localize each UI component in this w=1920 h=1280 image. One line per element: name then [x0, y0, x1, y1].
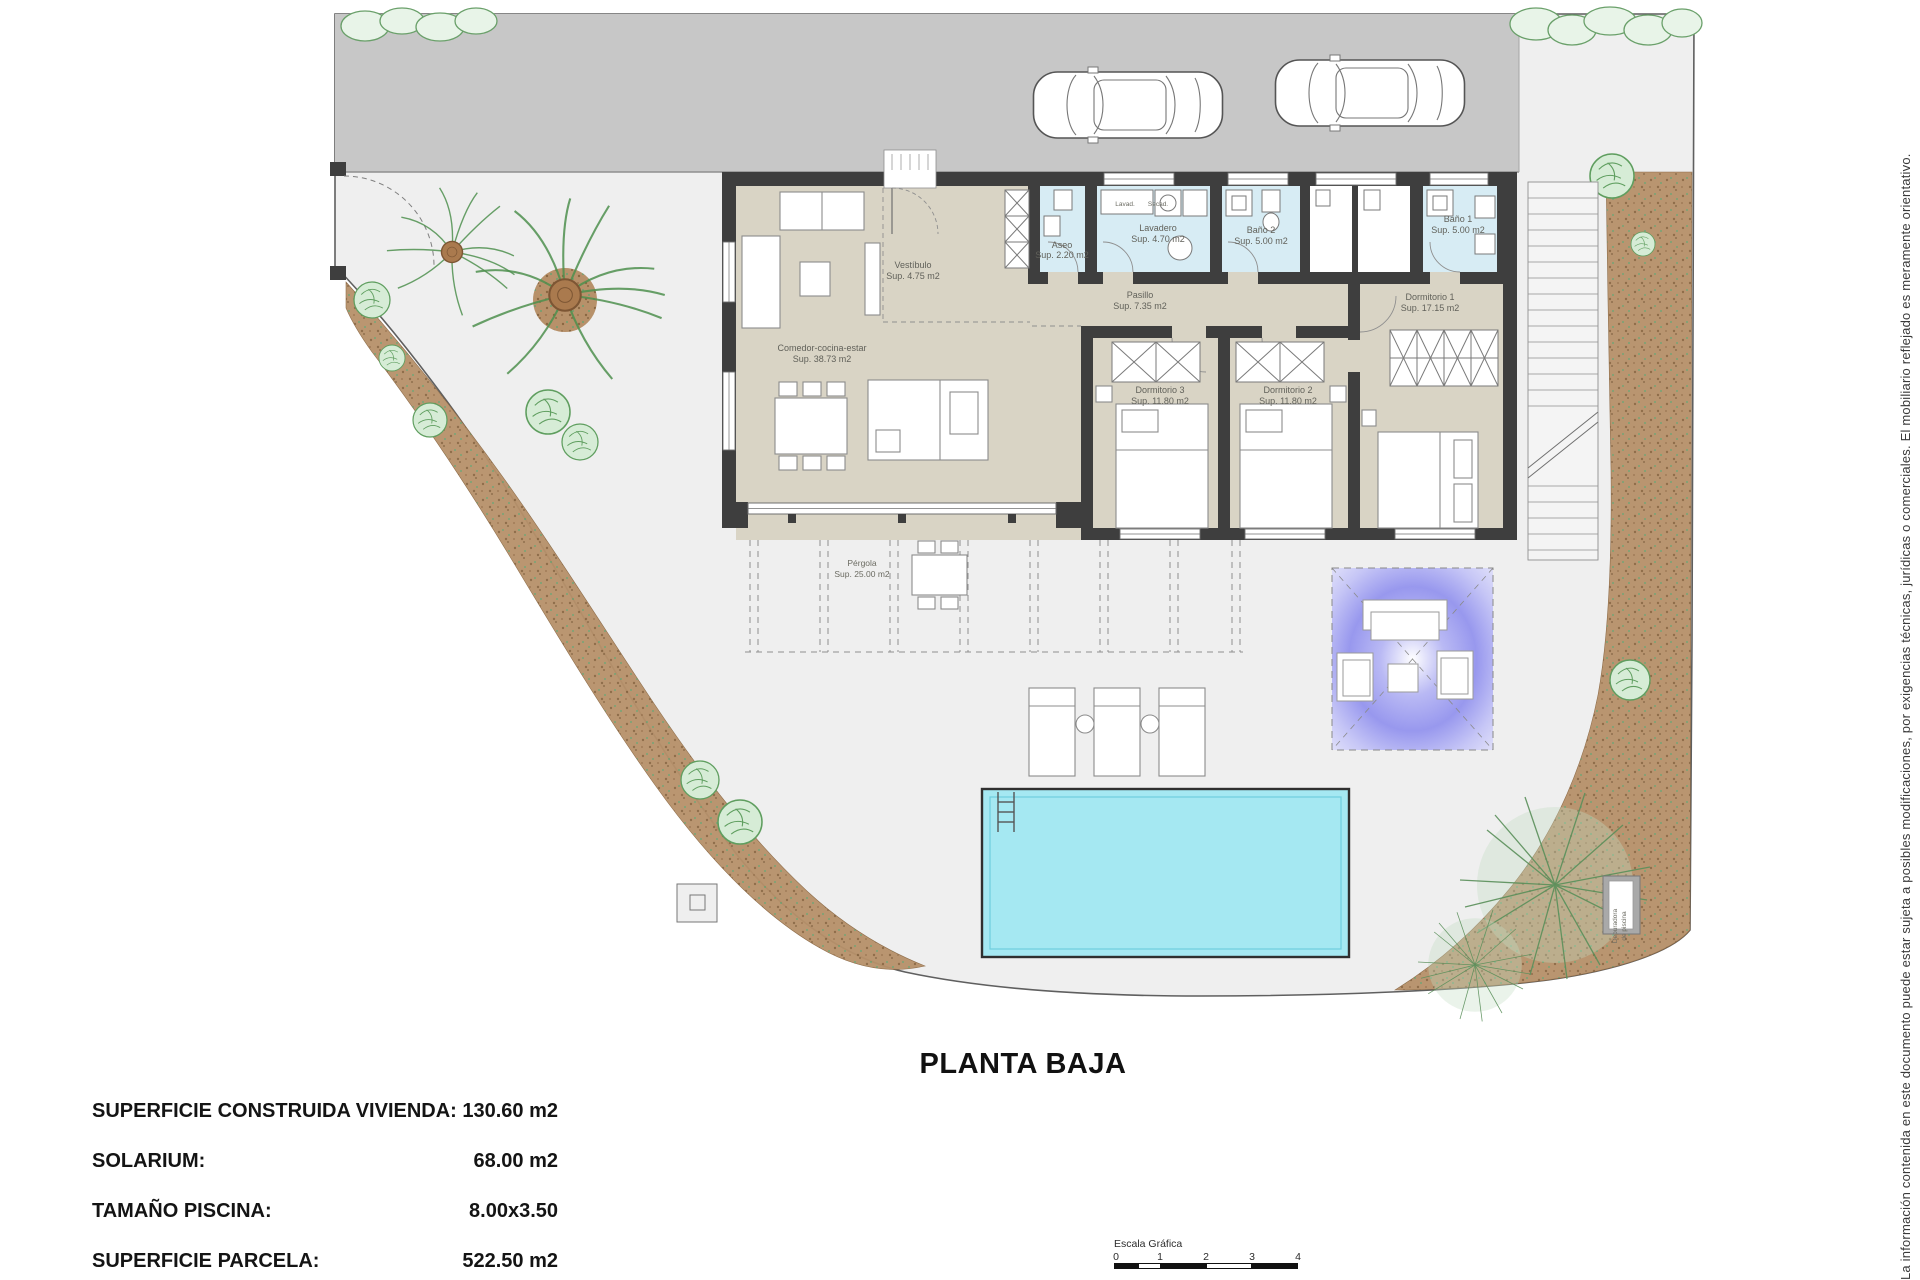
pool-pump-label-1: Depuradora — [1612, 908, 1619, 943]
sun-loungers — [1029, 688, 1205, 776]
scale-bar: Escala Gráfica 0 1 2 3 4 — [1114, 1238, 1304, 1269]
page-title: PLANTA BAJA — [860, 1048, 1186, 1081]
pool — [982, 789, 1349, 957]
summary-row: TAMAÑO PISCINA: 8.00x3.50 — [92, 1200, 558, 1223]
summary-row: SOLARIUM: 68.00 m2 — [92, 1150, 558, 1173]
hall-closet — [1005, 190, 1029, 268]
pool-pump-box: Depuradora de piscina — [1603, 876, 1640, 943]
room-label-dorm3: Dormitorio 3 — [1135, 385, 1184, 395]
summary-label: SUPERFICIE PARCELA: — [92, 1250, 319, 1273]
scale-bar-title: Escala Gráfica — [1114, 1238, 1304, 1250]
car-icon — [1276, 55, 1465, 131]
summary-label: SOLARIUM: — [92, 1150, 205, 1173]
summary-row: SUPERFICIE CONSTRUIDA VIVIENDA: 130.60 m… — [92, 1100, 558, 1123]
room-label-bano2: Baño 2 — [1247, 225, 1276, 235]
room-label-aseo: Aseo — [1052, 240, 1073, 250]
scale-tick: 4 — [1295, 1251, 1301, 1263]
utility-pad — [677, 884, 717, 922]
pool-pump-label-2: de piscina — [1621, 911, 1628, 941]
scale-tick: 2 — [1203, 1251, 1209, 1263]
room-label-pergola: Pérgola — [847, 558, 877, 568]
summary-table: SUPERFICIE CONSTRUIDA VIVIENDA: 130.60 m… — [92, 1100, 558, 1280]
summary-value: 68.00 m2 — [473, 1150, 558, 1173]
summary-value: 130.60 m2 — [462, 1100, 558, 1123]
summary-row: SUPERFICIE PARCELA: 522.50 m2 — [92, 1250, 558, 1273]
label-dryer: Secad. — [1148, 201, 1168, 208]
summary-value: 8.00x3.50 — [469, 1200, 558, 1223]
pergola-seating-area — [1332, 568, 1493, 750]
summary-label: SUPERFICIE CONSTRUIDA VIVIENDA: — [92, 1100, 457, 1123]
legal-disclaimer: La información contenida en este documen… — [1896, 0, 1916, 1280]
room-label-pasillo: Pasillo — [1127, 290, 1154, 300]
floor-plan-page: Pérgola Sup. 25.00 m2 — [0, 0, 1920, 1280]
room-area-dorm2: Sup. 11.80 m2 — [1259, 396, 1317, 406]
floor-plan-svg: Pérgola Sup. 25.00 m2 — [0, 0, 1920, 1280]
room-area-pasillo: Sup. 7.35 m2 — [1113, 301, 1167, 311]
room-label-lavadero: Lavadero — [1139, 223, 1177, 233]
room-label-bano1: Baño 1 — [1444, 214, 1473, 224]
room-area-dorm3: Sup. 11.80 m2 — [1131, 396, 1189, 406]
scale-tick: 0 — [1113, 1251, 1119, 1263]
room-label-dorm1: Dormitorio 1 — [1405, 292, 1454, 302]
room-area-dorm1: Sup. 17.15 m2 — [1401, 303, 1460, 313]
room-area-lavadero: Sup. 4.70 m2 — [1131, 234, 1185, 244]
staircase — [1528, 182, 1598, 560]
room-label-comedor: Comedor-cocina-estar — [777, 343, 866, 353]
label-washer: Lavad. — [1115, 201, 1135, 208]
summary-label: TAMAÑO PISCINA: — [92, 1200, 272, 1223]
summary-value: 522.50 m2 — [462, 1250, 558, 1273]
car-icon — [1034, 67, 1223, 143]
room-label-dorm2: Dormitorio 2 — [1263, 385, 1312, 395]
scale-tick: 1 — [1157, 1251, 1163, 1263]
room-area-vestibulo: Sup. 4.75 m2 — [886, 271, 940, 281]
room-area-bano2: Sup. 5.00 m2 — [1234, 236, 1288, 246]
room-area-aseo: Sup. 2.20 m2 — [1035, 250, 1089, 260]
scale-tick: 3 — [1249, 1251, 1255, 1263]
glass-wall — [748, 503, 1056, 523]
room-area-comedor: Sup. 38.73 m2 — [793, 354, 852, 364]
scale-bar-segments — [1114, 1263, 1298, 1269]
scale-bar-ticks: 0 1 2 3 4 — [1114, 1251, 1304, 1263]
room-area-pergola: Sup. 25.00 m2 — [834, 569, 890, 579]
room-label-vestibulo: Vestíbulo — [894, 260, 931, 270]
room-area-bano1: Sup. 5.00 m2 — [1431, 225, 1485, 235]
